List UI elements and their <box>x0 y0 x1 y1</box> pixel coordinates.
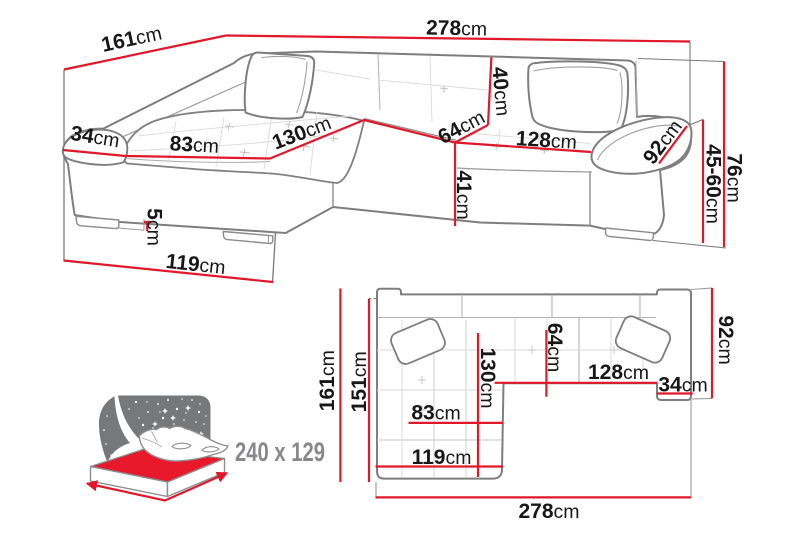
svg-text:41cm: 41cm <box>452 170 475 219</box>
svg-text:76cm: 76cm <box>723 153 746 202</box>
svg-text:278cm: 278cm <box>518 500 579 523</box>
svg-text:128cm: 128cm <box>515 127 577 154</box>
svg-text:119cm: 119cm <box>412 446 472 469</box>
svg-text:151cm: 151cm <box>348 351 371 412</box>
svg-text:40cm: 40cm <box>487 66 514 117</box>
svg-text:161cm: 161cm <box>316 350 339 411</box>
svg-text:278cm: 278cm <box>426 16 487 40</box>
svg-text:64cm: 64cm <box>543 323 566 372</box>
svg-text:34cm: 34cm <box>658 374 707 397</box>
svg-text:83cm: 83cm <box>411 402 460 425</box>
svg-text:5cm: 5cm <box>143 208 166 246</box>
svg-text:128cm: 128cm <box>588 361 649 384</box>
svg-text:130cm: 130cm <box>476 347 499 408</box>
svg-text:45-60cm: 45-60cm <box>702 144 725 224</box>
svg-text:92cm: 92cm <box>714 315 737 364</box>
svg-text:83cm: 83cm <box>169 132 219 158</box>
svg-text:240 x 129: 240 x 129 <box>235 437 325 467</box>
